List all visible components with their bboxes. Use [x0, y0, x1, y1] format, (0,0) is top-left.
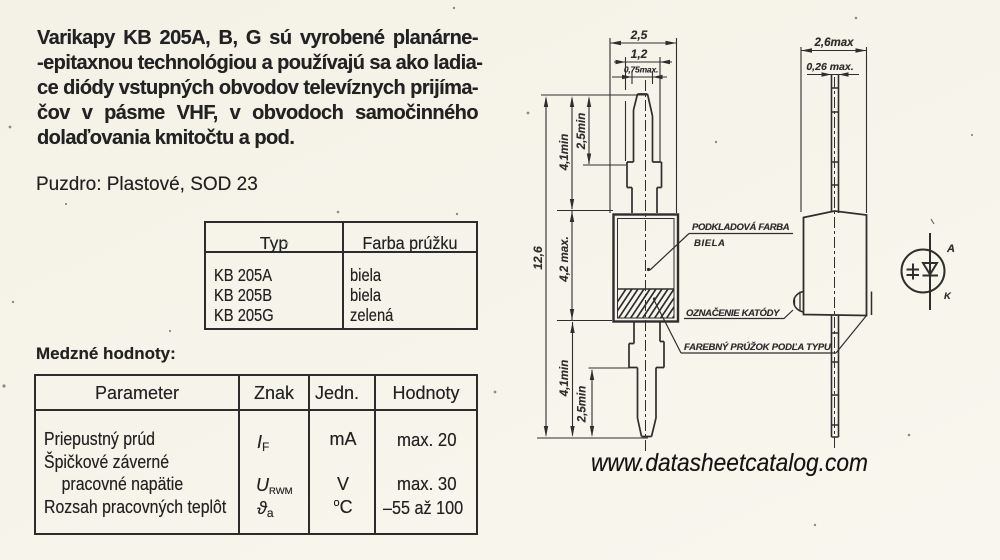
svg-text:4,1min: 4,1min — [559, 134, 571, 171]
svg-text:OZNAČENIE KATÓDY: OZNAČENIE KATÓDY — [686, 307, 781, 319]
svg-text:4,1min: 4,1min — [559, 360, 571, 397]
svg-text:K: K — [944, 291, 952, 302]
svg-text:4,2 max.: 4,2 max. — [559, 236, 571, 282]
svg-text:2,6max: 2,6max — [813, 37, 854, 49]
svg-text:1,2: 1,2 — [631, 47, 648, 61]
svg-text:0,26 max.: 0,26 max. — [806, 61, 853, 73]
svg-text:2,5min: 2,5min — [576, 113, 588, 150]
svg-text:PODKLADOVÁ FARBA: PODKLADOVÁ FARBA — [692, 222, 790, 233]
svg-text:BIELA: BIELA — [694, 238, 726, 249]
svg-text:FAREBNÝ PRÚŽOK PODĽA TYPU: FAREBNÝ PRÚŽOK PODĽA TYPU — [684, 341, 832, 353]
svg-text:A: A — [946, 243, 955, 255]
svg-text:2,5: 2,5 — [630, 28, 648, 42]
svg-text:0,75max.: 0,75max. — [624, 65, 658, 75]
svg-text:2,5min: 2,5min — [577, 386, 589, 423]
svg-text:12,6: 12,6 — [531, 246, 545, 270]
